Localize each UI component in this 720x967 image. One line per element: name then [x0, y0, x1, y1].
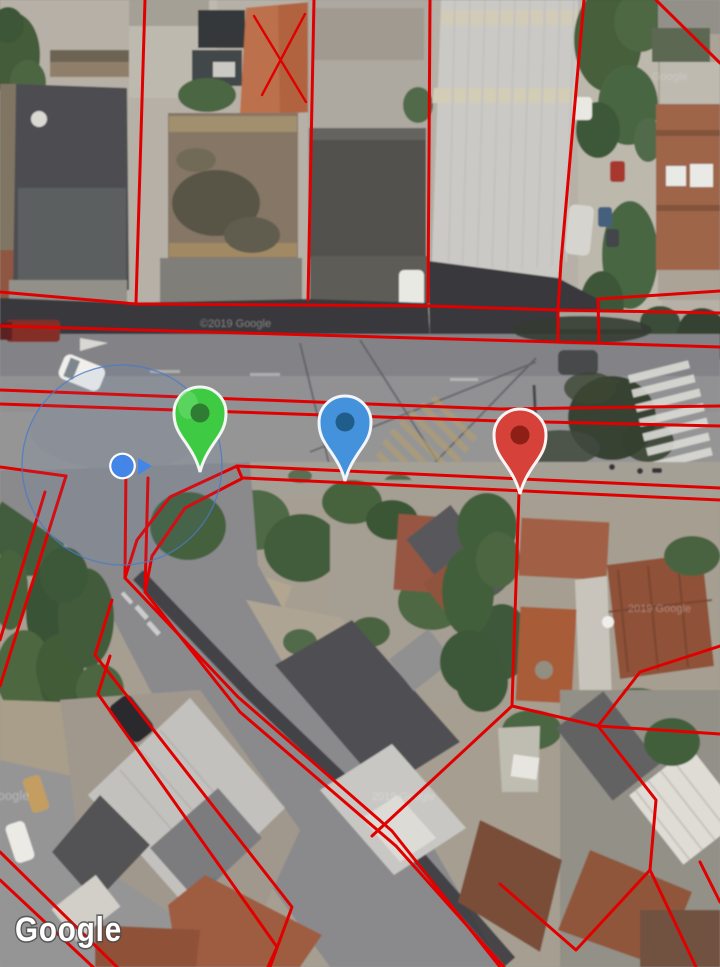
svg-text:2019 Google: 2019 Google	[628, 603, 691, 615]
svg-text:Google: Google	[15, 911, 122, 949]
svg-text:2019 Google: 2019 Google	[372, 791, 435, 803]
svg-text:2019 Google: 2019 Google	[0, 788, 29, 803]
